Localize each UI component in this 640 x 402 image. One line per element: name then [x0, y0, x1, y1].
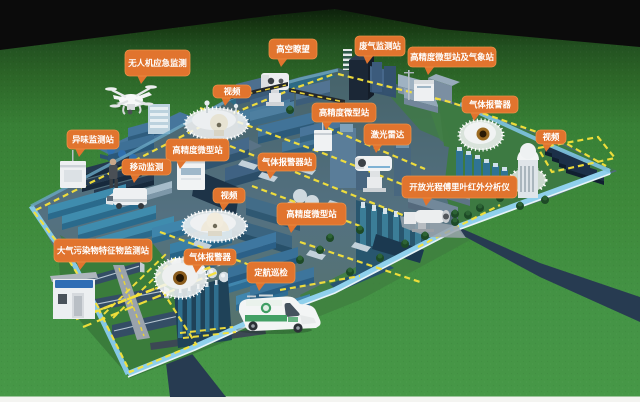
- svg-text:气体报警器: 气体报警器: [468, 100, 511, 110]
- svg-text:高精度微型站: 高精度微型站: [286, 209, 337, 219]
- svg-text:异味监测站: 异味监测站: [72, 135, 114, 145]
- svg-text:激光雷达: 激光雷达: [371, 130, 405, 140]
- svg-text:视频: 视频: [221, 191, 238, 201]
- svg-text:开放光程傅里叶红外分析仪: 开放光程傅里叶红外分析仪: [409, 182, 510, 192]
- svg-text:大气污染物特征物监测站: 大气污染物特征物监测站: [57, 246, 150, 256]
- svg-text:气体报警器: 气体报警器: [188, 252, 231, 262]
- svg-text:高精度微型站: 高精度微型站: [319, 108, 370, 118]
- svg-text:无人机应急监测: 无人机应急监测: [127, 58, 187, 68]
- svg-text:视频: 视频: [224, 87, 241, 97]
- svg-text:高精度微型站: 高精度微型站: [172, 145, 223, 155]
- svg-text:移动监测: 移动监测: [130, 162, 164, 172]
- svg-text:废气监测站: 废气监测站: [359, 41, 401, 51]
- svg-text:定航巡检: 定航巡检: [253, 268, 288, 278]
- svg-text:高空瞭望: 高空瞭望: [276, 44, 310, 54]
- svg-text:视频: 视频: [543, 132, 560, 142]
- svg-text:气体报警器站: 气体报警器站: [261, 157, 313, 167]
- svg-text:高精度微型站及气象站: 高精度微型站及气象站: [410, 52, 494, 62]
